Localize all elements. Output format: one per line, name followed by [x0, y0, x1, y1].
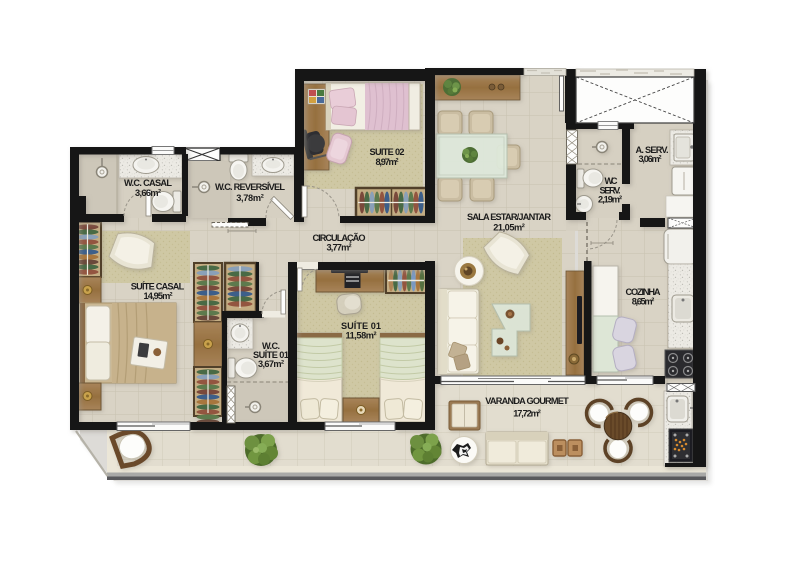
svg-text:WC: WC	[605, 176, 618, 186]
svg-text:3,77m²: 3,77m²	[327, 243, 352, 253]
svg-text:3,66m²: 3,66m²	[135, 188, 161, 198]
svg-text:SUÍTE CASAL: SUÍTE CASAL	[131, 281, 185, 292]
svg-text:VARANDA GOURMET: VARANDA GOURMET	[485, 396, 569, 406]
svg-text:W.C. REVERSÍVEL: W.C. REVERSÍVEL	[215, 181, 285, 192]
svg-text:SUITE 02: SUITE 02	[370, 147, 405, 157]
svg-text:W.C. CASAL: W.C. CASAL	[124, 178, 172, 188]
svg-text:SALA ESTAR/JANTAR: SALA ESTAR/JANTAR	[467, 212, 551, 222]
svg-text:SUÍTE 01: SUÍTE 01	[341, 320, 381, 331]
svg-text:21,05m²: 21,05m²	[493, 223, 525, 233]
svg-text:17,72m²: 17,72m²	[513, 409, 541, 419]
svg-text:3,06m²: 3,06m²	[639, 154, 662, 164]
svg-text:CIRCULAÇÃO: CIRCULAÇÃO	[313, 233, 366, 243]
svg-text:11,58m²: 11,58m²	[346, 331, 377, 341]
svg-text:14,95m²: 14,95m²	[144, 291, 173, 301]
svg-text:8,97m²: 8,97m²	[376, 157, 399, 167]
svg-text:8,65m²: 8,65m²	[632, 297, 655, 307]
svg-text:3,78m²: 3,78m²	[236, 193, 264, 203]
svg-text:COZINHA: COZINHA	[626, 287, 661, 297]
svg-text:3,67m²: 3,67m²	[258, 359, 284, 369]
svg-text:2,19m²: 2,19m²	[598, 195, 622, 205]
